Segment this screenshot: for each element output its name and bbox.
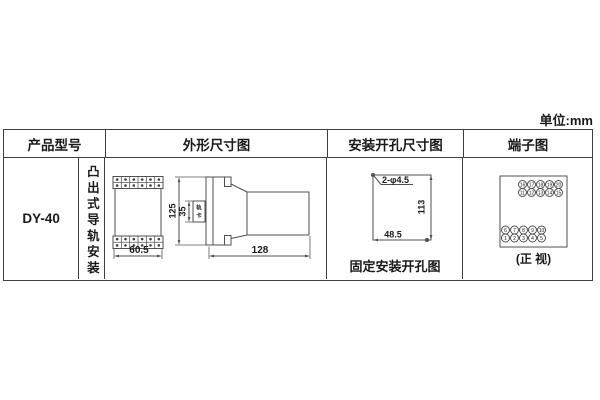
terminal-number: 5 <box>540 236 543 242</box>
terminal-screw <box>124 238 127 241</box>
terminal-number: 19 <box>547 182 553 188</box>
terminal-group-bottom: 67891012345 <box>502 226 546 242</box>
terminal-number: 18 <box>538 182 544 188</box>
terminal-screw <box>133 238 136 241</box>
mounting-hole-top-left <box>371 173 375 177</box>
dim-label-rail-width: 35 <box>178 206 188 216</box>
terminal-screw <box>149 178 152 181</box>
product-model: DY-40 <box>22 211 60 226</box>
hole-spec-label: 2-φ4.5 <box>382 175 409 185</box>
unit-label: 单位:mm <box>540 110 593 129</box>
terminal-screw <box>124 244 127 247</box>
terminal-number: 2 <box>513 236 516 242</box>
terminal-screw <box>158 244 161 247</box>
mounting-hole-bottom-right <box>425 238 429 242</box>
terminal-screw <box>158 238 161 241</box>
side-flange <box>206 177 213 245</box>
terminal-screw <box>116 238 119 241</box>
rail-clip-label: 轨卡 <box>196 204 202 220</box>
front-terminal-strip-top <box>113 177 163 189</box>
terminal-number: 11 <box>520 190 525 196</box>
rail-clip-char: 卡 <box>196 212 202 220</box>
table-header-row: 产品型号 外形尺寸图 安装开孔尺寸图 端子图 <box>4 130 592 158</box>
terminal-number: 3 <box>522 236 525 242</box>
terminal-screw <box>116 184 119 187</box>
terminal-number: 6 <box>504 228 507 234</box>
header-mounting-holes: 安装开孔尺寸图 <box>328 130 464 157</box>
terminal-number: 1 <box>504 236 507 242</box>
terminal-screw <box>158 184 161 187</box>
terminal-screw <box>116 244 119 247</box>
header-product-model: 产品型号 <box>4 130 106 157</box>
terminal-number: 20 <box>556 182 562 188</box>
terminal-caption: (正 视) <box>500 250 567 267</box>
mounting-hole-caption: 固定安装开孔图 <box>327 256 463 275</box>
terminal-screw <box>133 184 136 187</box>
terminal-screw <box>149 184 152 187</box>
outline-drawing-cell: 60.5 125 轨卡 35 <box>105 158 327 279</box>
terminal-number: 13 <box>538 190 544 196</box>
header-outline-drawing: 外形尺寸图 <box>106 130 328 157</box>
terminal-number: 10 <box>539 228 545 234</box>
terminal-screw <box>141 184 144 187</box>
terminal-screw <box>141 238 144 241</box>
terminal-number: 17 <box>529 182 535 188</box>
dim-label-h-spacing: 48.5 <box>384 230 402 240</box>
dim-label-v-spacing: 113 <box>417 200 427 215</box>
terminal-number: 9 <box>531 228 534 234</box>
dim-label-height: 125 <box>168 203 178 218</box>
terminal-diagram-cell: 16171819201112131415 67891012345 (正 视) <box>463 158 592 279</box>
terminal-number: 8 <box>522 228 525 234</box>
outline-drawing: 60.5 125 轨卡 35 <box>105 158 327 279</box>
rail-clip-char: 轨 <box>196 204 202 212</box>
table-body-row: DY-40 凸出式导轨安装 60.5 125 <box>4 158 592 279</box>
mounting-holes-cell: 2-φ4.5 113 48.5 固定安装开孔图 <box>327 158 463 279</box>
header-terminal-diagram: 端子图 <box>464 130 592 157</box>
terminal-screw <box>116 178 119 181</box>
side-body <box>247 192 309 235</box>
terminal-screw <box>124 178 127 181</box>
spec-table: 产品型号 外形尺寸图 安装开孔尺寸图 端子图 DY-40 凸出式导轨安装 60.… <box>3 129 593 281</box>
front-body <box>115 189 161 237</box>
terminal-screw <box>133 178 136 181</box>
terminal-number: 4 <box>531 236 534 242</box>
terminal-number: 7 <box>513 228 516 234</box>
terminal-screw <box>149 238 152 241</box>
mounting-type-cell: 凸出式导轨安装 <box>79 158 105 279</box>
terminal-screw <box>124 184 127 187</box>
terminal-screw <box>149 244 152 247</box>
dim-label-depth: 128 <box>252 245 269 256</box>
terminal-number: 15 <box>556 190 562 196</box>
terminal-number: 16 <box>520 182 526 188</box>
terminal-screw <box>158 178 161 181</box>
product-model-cell: DY-40 <box>4 158 79 279</box>
mounting-type-vertical-text: 凸出式导轨安装 <box>85 165 98 277</box>
dim-label-front-width: 60.5 <box>129 245 149 256</box>
terminal-screw <box>141 178 144 181</box>
terminal-group-top: 16171819201112131415 <box>519 181 563 197</box>
terminal-number: 12 <box>529 190 535 196</box>
terminal-number: 14 <box>547 190 553 196</box>
